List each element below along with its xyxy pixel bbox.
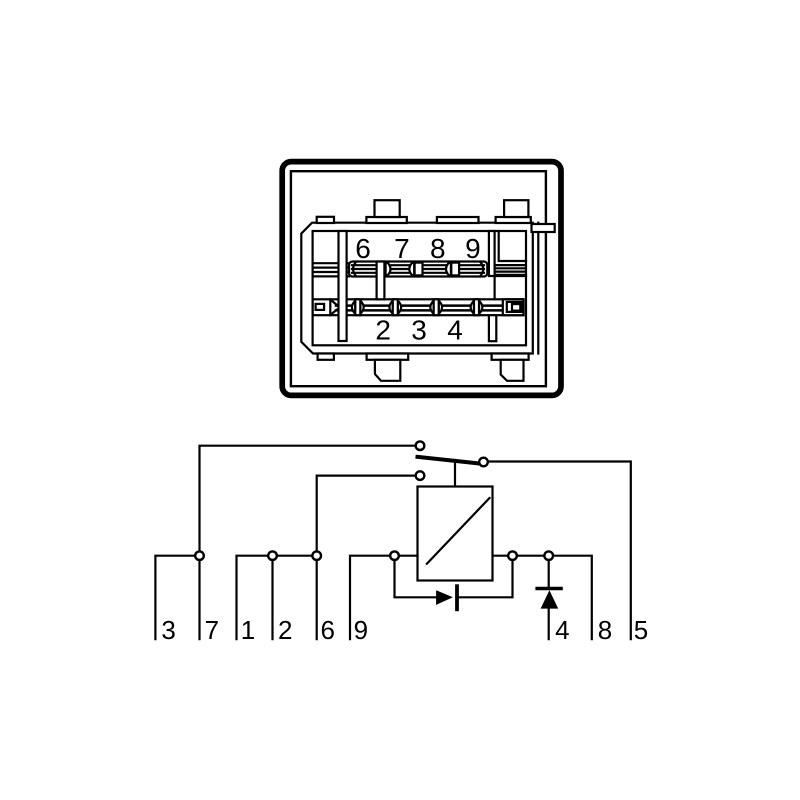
svg-text:4: 4 [555,615,569,645]
svg-text:7: 7 [205,615,219,645]
svg-text:3: 3 [161,615,175,645]
svg-text:5: 5 [634,615,648,645]
svg-text:9: 9 [354,615,368,645]
svg-text:6: 6 [355,233,371,264]
svg-text:2: 2 [375,314,391,345]
svg-text:7: 7 [394,233,410,264]
svg-text:8: 8 [430,233,446,264]
svg-text:8: 8 [598,615,612,645]
svg-text:2: 2 [278,615,292,645]
svg-text:6: 6 [320,615,334,645]
svg-text:9: 9 [465,233,481,264]
svg-text:3: 3 [411,314,427,345]
svg-text:1: 1 [241,615,255,645]
svg-text:4: 4 [447,314,463,345]
